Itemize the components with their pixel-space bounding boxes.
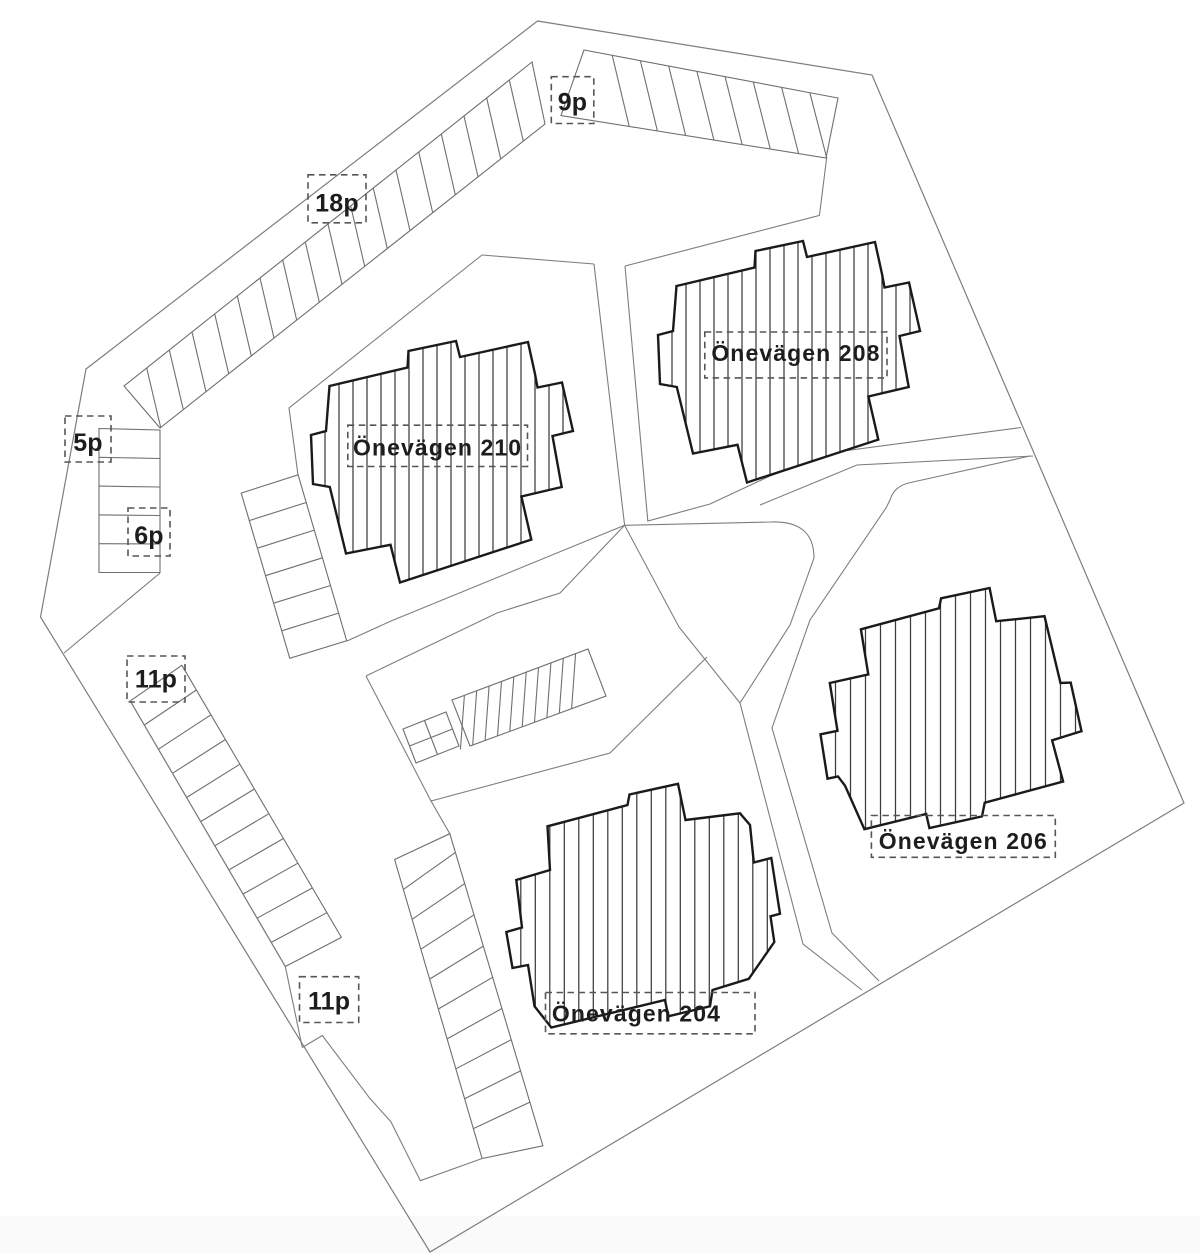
svg-text:5p: 5p (73, 429, 103, 457)
svg-text:11p: 11p (308, 988, 350, 1016)
svg-text:6p: 6p (134, 522, 164, 550)
svg-text:Önevägen 208: Önevägen 208 (711, 340, 880, 366)
svg-text:18p: 18p (315, 190, 359, 218)
svg-text:11p: 11p (135, 666, 177, 694)
svg-text:Önevägen 206: Önevägen 206 (879, 828, 1048, 854)
svg-text:9p: 9p (558, 89, 588, 117)
svg-text:Önevägen 204: Önevägen 204 (552, 1001, 721, 1027)
svg-text:Önevägen 210: Önevägen 210 (353, 435, 522, 461)
